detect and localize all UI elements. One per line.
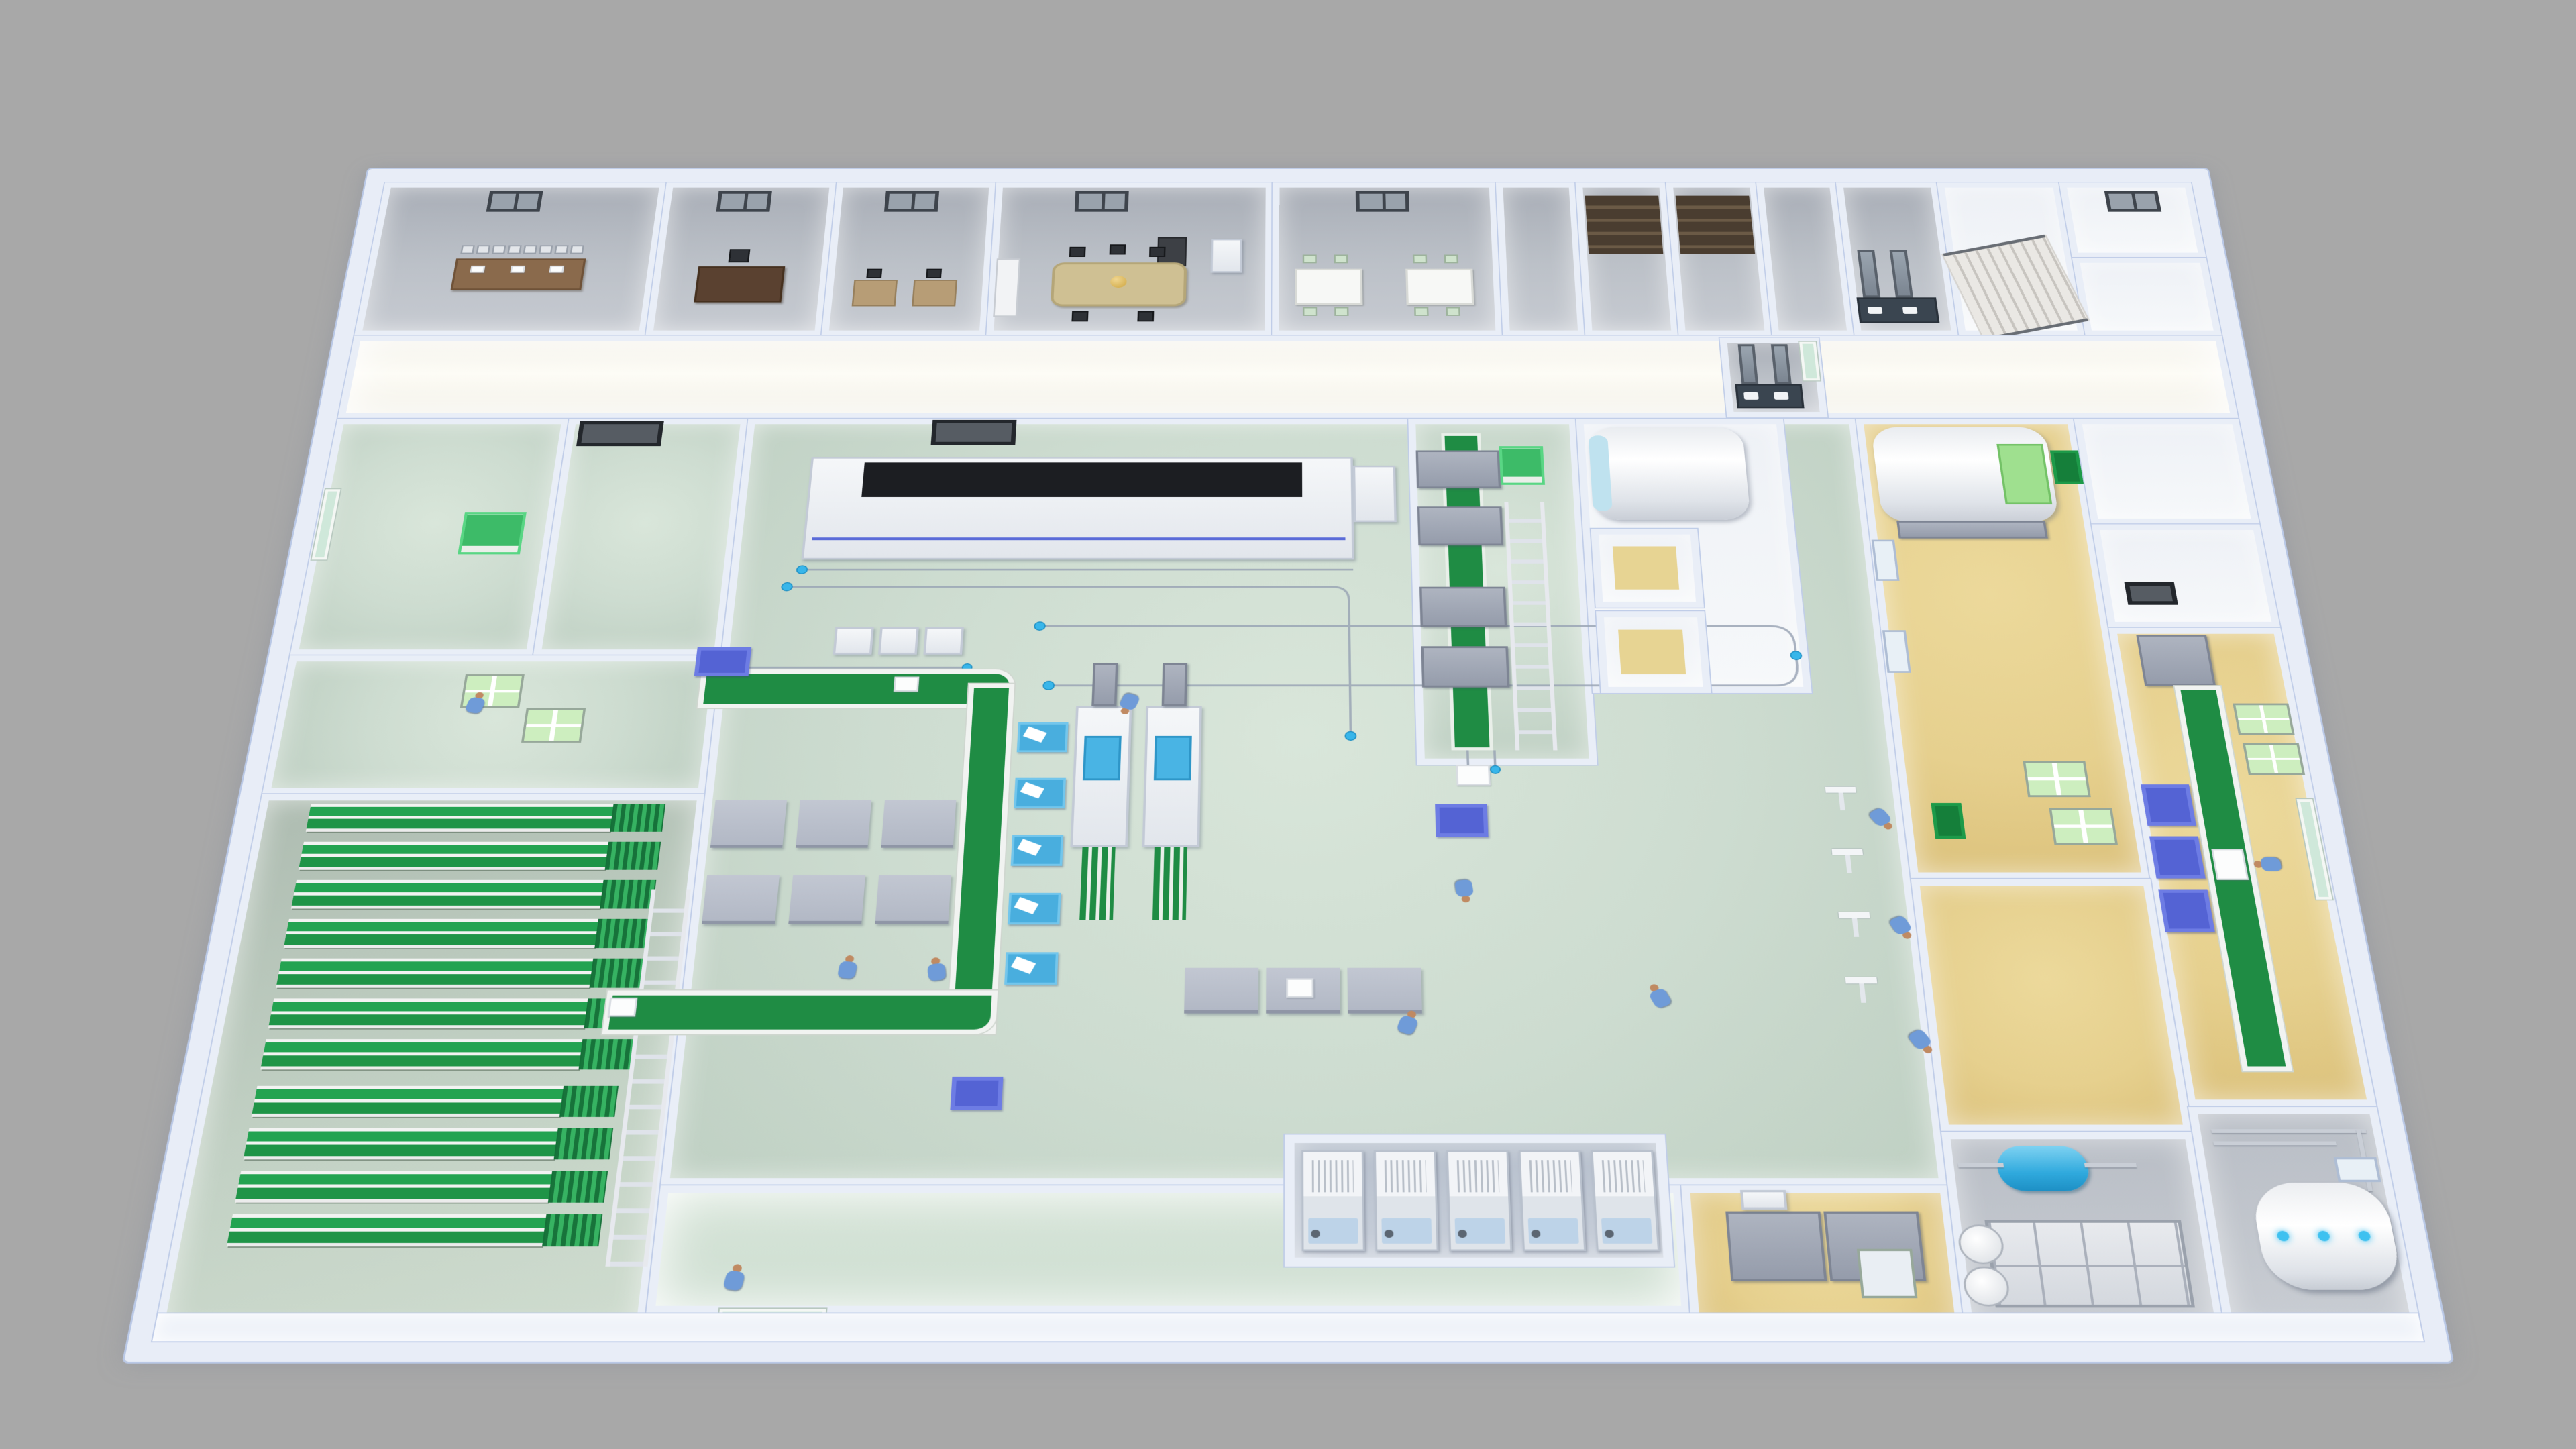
- tray-cart: [2023, 761, 2090, 797]
- work-table: [796, 800, 871, 848]
- airlock-floor-pad: [1613, 546, 1679, 589]
- chair: [1444, 254, 1458, 263]
- chair: [1413, 254, 1427, 263]
- fill-station: [1008, 893, 1061, 924]
- chair: [1414, 307, 1429, 316]
- chair: [492, 245, 506, 254]
- meeting-chair: [1071, 311, 1088, 322]
- blue-tote: [950, 1077, 1003, 1110]
- chair: [554, 245, 568, 254]
- office-chair: [866, 269, 882, 278]
- ceiling-hatch: [2125, 582, 2178, 605]
- window-icon: [1356, 191, 1409, 212]
- meeting-chair: [1149, 247, 1166, 257]
- conference-table: [451, 258, 586, 290]
- cartoner-infeed: [1091, 663, 1118, 706]
- fill-station: [1017, 722, 1069, 752]
- sink-station: [923, 627, 963, 654]
- room-service-b: [2092, 524, 2281, 627]
- green-rack: [306, 804, 614, 831]
- worker: [1454, 878, 1475, 903]
- green-bin: [2050, 450, 2084, 484]
- sink-counter: [1856, 297, 1939, 323]
- wall-panel: [2334, 1157, 2381, 1182]
- laptop: [510, 266, 525, 273]
- blue-tote: [2149, 837, 2206, 879]
- work-table: [710, 800, 787, 848]
- green-rack: [268, 998, 588, 1028]
- work-table: [1347, 968, 1422, 1014]
- airlock-floor-pad: [1618, 630, 1686, 674]
- sink-station: [833, 627, 874, 654]
- green-rack: [227, 1214, 547, 1246]
- copier: [1210, 239, 1242, 272]
- belt-conveyor-bottom: [602, 991, 998, 1034]
- chair: [476, 245, 491, 254]
- work-table: [1184, 968, 1258, 1014]
- corridor-main: [337, 336, 2238, 419]
- tunnel-panel: [861, 462, 1302, 497]
- fill-station: [1011, 835, 1064, 865]
- freeze-dryer: [1519, 1150, 1586, 1251]
- chair: [1303, 254, 1317, 263]
- pipe: [1958, 1163, 2004, 1167]
- window-icon: [2104, 191, 2161, 212]
- chair: [539, 245, 553, 254]
- green-bin: [1931, 803, 1966, 839]
- meeting-cabinet: [993, 258, 1020, 317]
- freeze-dryer: [1591, 1150, 1660, 1251]
- wire-basket: [1857, 1249, 1918, 1299]
- cartoner-infeed: [1162, 663, 1187, 706]
- sterilizer-drum: [1588, 427, 1751, 520]
- white-sheet: [1286, 978, 1313, 997]
- tunnel-rail: [812, 537, 1345, 540]
- ceiling-hatch: [931, 420, 1017, 445]
- work-table: [702, 875, 780, 924]
- window-icon: [1075, 191, 1129, 212]
- work-table: [788, 875, 865, 924]
- pipe: [2211, 1129, 2366, 1133]
- office-desk: [852, 280, 898, 306]
- ceiling-hatch: [576, 421, 664, 446]
- carton-box: [1456, 765, 1491, 786]
- cartoner-tail-belt: [1079, 847, 1115, 920]
- green-crate-stack: [1499, 446, 1546, 485]
- meeting-chair: [1110, 244, 1126, 254]
- drop-stand: [1825, 787, 1856, 793]
- green-rack: [291, 880, 604, 909]
- facility-floorplan: [124, 169, 2452, 1362]
- executive-desk: [694, 266, 785, 302]
- chair: [507, 245, 521, 254]
- tunnel-outfeed: [1353, 466, 1397, 522]
- pressure-tank: [1994, 1146, 2092, 1191]
- green-rack: [284, 919, 598, 948]
- autoclave-tray: [1996, 444, 2052, 504]
- chair: [1303, 307, 1317, 316]
- work-table: [881, 800, 956, 848]
- carton-box: [608, 998, 638, 1017]
- freeze-dryer: [1374, 1150, 1438, 1251]
- chair: [460, 245, 475, 254]
- laptop: [470, 266, 486, 273]
- executive-chair: [728, 249, 750, 262]
- tray-cart: [521, 708, 586, 743]
- laptop: [549, 266, 564, 273]
- pipe: [2213, 1142, 2337, 1146]
- drop-stand: [1838, 912, 1870, 918]
- tray-cart: [2233, 704, 2294, 735]
- room-cleanroom-storage: [290, 419, 569, 655]
- carton-box: [894, 676, 920, 691]
- freeze-dryer: [1301, 1150, 1365, 1251]
- green-rack: [252, 1086, 563, 1117]
- green-rack: [244, 1128, 558, 1160]
- drop-stand: [1831, 849, 1862, 855]
- chair: [570, 245, 584, 254]
- meeting-chair: [1137, 311, 1154, 322]
- room-small-1: [1496, 182, 1585, 335]
- freeze-dryer: [1446, 1150, 1512, 1251]
- cartoner-window: [1154, 736, 1192, 780]
- closet-shelves: [1676, 196, 1756, 254]
- room-airlock: [533, 419, 748, 655]
- window-icon: [716, 191, 772, 212]
- autoclave-base: [1896, 521, 2048, 538]
- blue-tote: [2141, 784, 2196, 826]
- cartoner-tail-belt: [1152, 847, 1187, 920]
- green-rack: [299, 842, 608, 870]
- render-viewport[interactable]: [0, 0, 2576, 1449]
- process-machine: [1416, 450, 1501, 488]
- room-service-a: [2074, 419, 2260, 524]
- chair: [1334, 307, 1348, 316]
- front-wall: [152, 1313, 2424, 1341]
- carton-box: [2211, 849, 2249, 880]
- chair: [523, 245, 537, 254]
- blue-tote: [1435, 804, 1488, 837]
- green-rack: [276, 959, 593, 988]
- work-table: [875, 875, 951, 924]
- tray-cart: [2049, 808, 2118, 845]
- blue-tote: [2158, 890, 2215, 932]
- washer-panel: [1740, 1190, 1788, 1210]
- closet-shelves: [1585, 196, 1664, 254]
- office-chair: [926, 269, 942, 278]
- fill-station: [1014, 778, 1066, 808]
- meeting-chair: [1069, 247, 1086, 257]
- process-machine: [1421, 646, 1509, 687]
- window-icon: [884, 191, 939, 212]
- hopper-machine: [2136, 635, 2216, 686]
- window-icon: [486, 191, 543, 212]
- office-desk: [912, 280, 957, 306]
- green-rack: [235, 1171, 552, 1203]
- tray-cart: [2243, 743, 2305, 775]
- sink-station: [878, 627, 919, 654]
- blue-tote: [694, 647, 752, 676]
- sectional-water-tank: [1984, 1220, 2195, 1307]
- pipe: [2084, 1163, 2137, 1167]
- process-machine: [1419, 587, 1507, 627]
- fill-station: [1004, 952, 1059, 985]
- sink-counter: [1735, 384, 1804, 408]
- room-right-b: [2072, 258, 2222, 335]
- worker: [2253, 857, 2284, 871]
- green-rack: [260, 1039, 582, 1069]
- washer-unit: [1725, 1212, 1827, 1281]
- chair: [1446, 307, 1460, 316]
- process-machine: [1417, 506, 1503, 545]
- worker: [926, 957, 947, 983]
- break-table: [1405, 269, 1474, 305]
- cartoner-window: [1083, 736, 1122, 780]
- chair: [1334, 254, 1348, 263]
- green-crate-stack: [458, 512, 527, 554]
- room-yellow-link: [1911, 879, 2192, 1132]
- break-table: [1295, 269, 1362, 305]
- drop-stand: [1845, 977, 1878, 983]
